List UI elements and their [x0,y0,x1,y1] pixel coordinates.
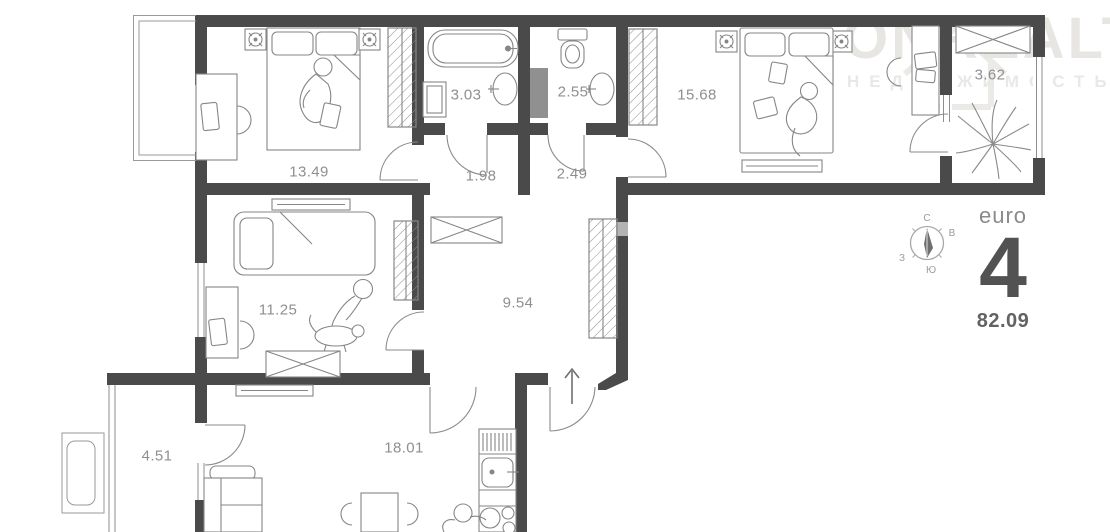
desk-with-chair [196,74,251,160]
open-balcony-outline [134,16,197,161]
room-area-label-bedroom-second: 15.68 [677,87,717,104]
ceiling-light-icon [716,31,737,52]
dresser [272,199,350,210]
dining-table [341,493,418,532]
compass-rose: С В Ю З [899,213,956,276]
unit-info: euro 4 82.09 [961,203,1045,333]
ceiling-light-icon [359,29,380,50]
radiator [236,385,313,396]
compass-north-label: С [923,213,930,224]
toilet [558,29,587,68]
wardrobe [394,221,418,300]
plant-icon [956,100,1031,179]
dresser [266,351,340,377]
rooms-count-label: 4 [961,229,1045,308]
room-area-label-balcony-left: 4.51 [142,448,173,465]
ac-unit [62,433,104,513]
furniture [196,26,1031,532]
sink [586,73,614,105]
room-area-label-wc: 2.55 [558,84,589,101]
compass-needle [924,228,933,258]
vent-shaft [530,68,548,118]
total-area-label: 82.09 [961,310,1045,333]
room-area-label-bedroom-main: 13.49 [289,164,329,181]
room-area-label-corridor: 9.54 [503,295,534,312]
person-with-dog [310,280,373,353]
glazing-balcony-right [1033,57,1045,158]
single-bed [234,212,375,275]
door-bedroom-kids [386,312,424,350]
entrance-arrow [565,369,579,404]
door-balcony-left [205,425,245,465]
ceiling-light-icon [831,31,852,52]
door-kitchen [430,387,476,433]
sink [488,73,517,105]
wardrobe [388,28,416,127]
room-area-label-kitchen-living: 18.01 [384,440,424,457]
desk-with-chair [206,287,254,358]
compass-south-label: Ю [926,265,936,276]
bathtub [428,30,518,67]
floor-plan: ONREALT НЕДВИЖИМОСТЬ [0,0,1110,532]
double-bed [740,28,833,153]
window-bedroom-kids [195,263,207,337]
wardrobe [629,29,657,125]
storage-box [956,26,1030,53]
room-area-label-hall-mid: 2.49 [557,166,588,183]
sofa [204,466,262,532]
glazing-balcony-left [109,385,115,532]
compass-west-label: З [899,253,905,264]
shoe-cabinet [431,217,502,243]
door-bedroom-main [380,142,418,180]
kitchen-counter [479,429,519,532]
desk-with-chair [887,26,939,115]
room-area-label-bathroom: 3.03 [451,87,482,104]
room-area-label-balcony-right: 3.62 [975,67,1006,84]
compass-east-label: В [949,228,956,239]
room-area-label-bedroom-kids: 11.25 [259,302,297,319]
washing-machine [423,82,446,117]
room-area-label-hall-small: 1.98 [466,168,497,185]
ceiling-light-icon [245,29,266,50]
wardrobe [589,219,617,338]
window-balcony-right-inner [940,95,952,122]
tv-console [742,160,822,172]
door-bedroom-second [628,139,666,177]
